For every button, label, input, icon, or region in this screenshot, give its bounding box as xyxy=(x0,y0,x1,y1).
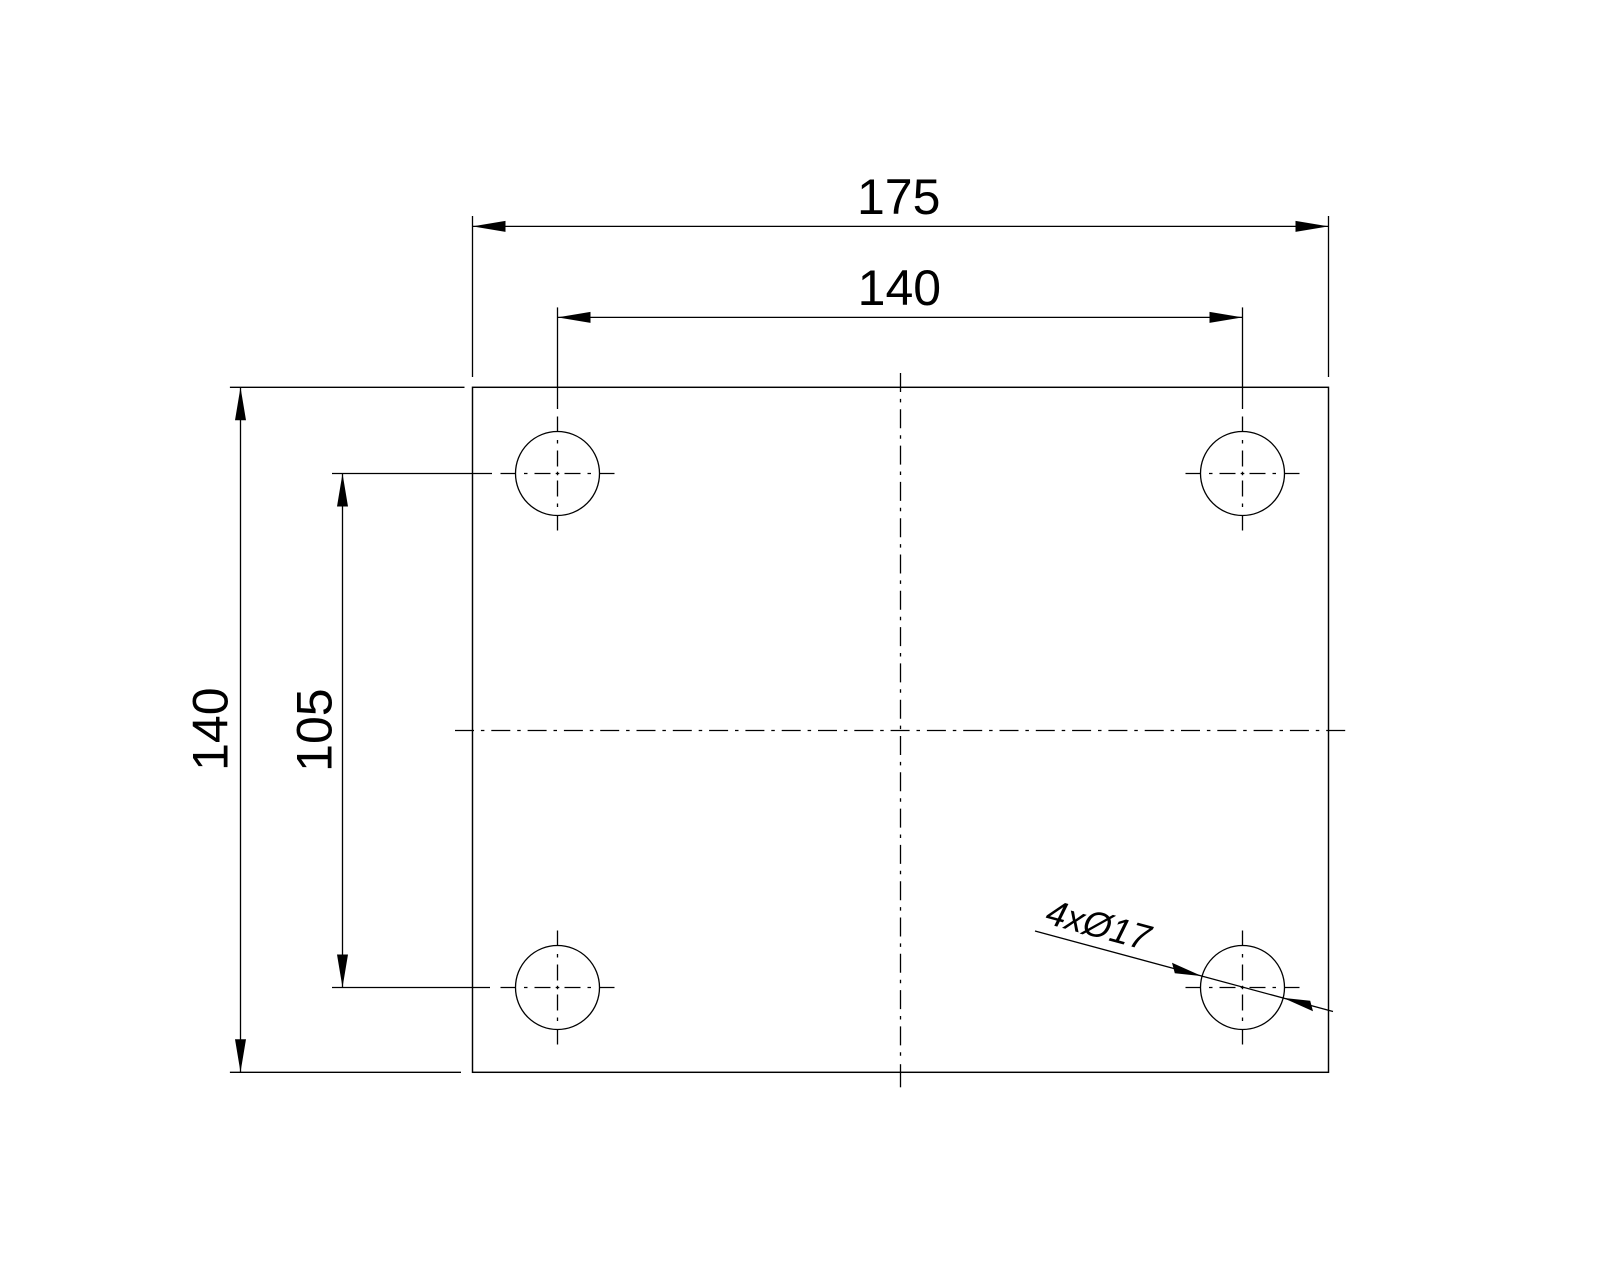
svg-text:140: 140 xyxy=(182,687,238,770)
svg-text:140: 140 xyxy=(858,260,941,316)
svg-text:175: 175 xyxy=(857,169,940,225)
svg-text:105: 105 xyxy=(287,688,343,771)
